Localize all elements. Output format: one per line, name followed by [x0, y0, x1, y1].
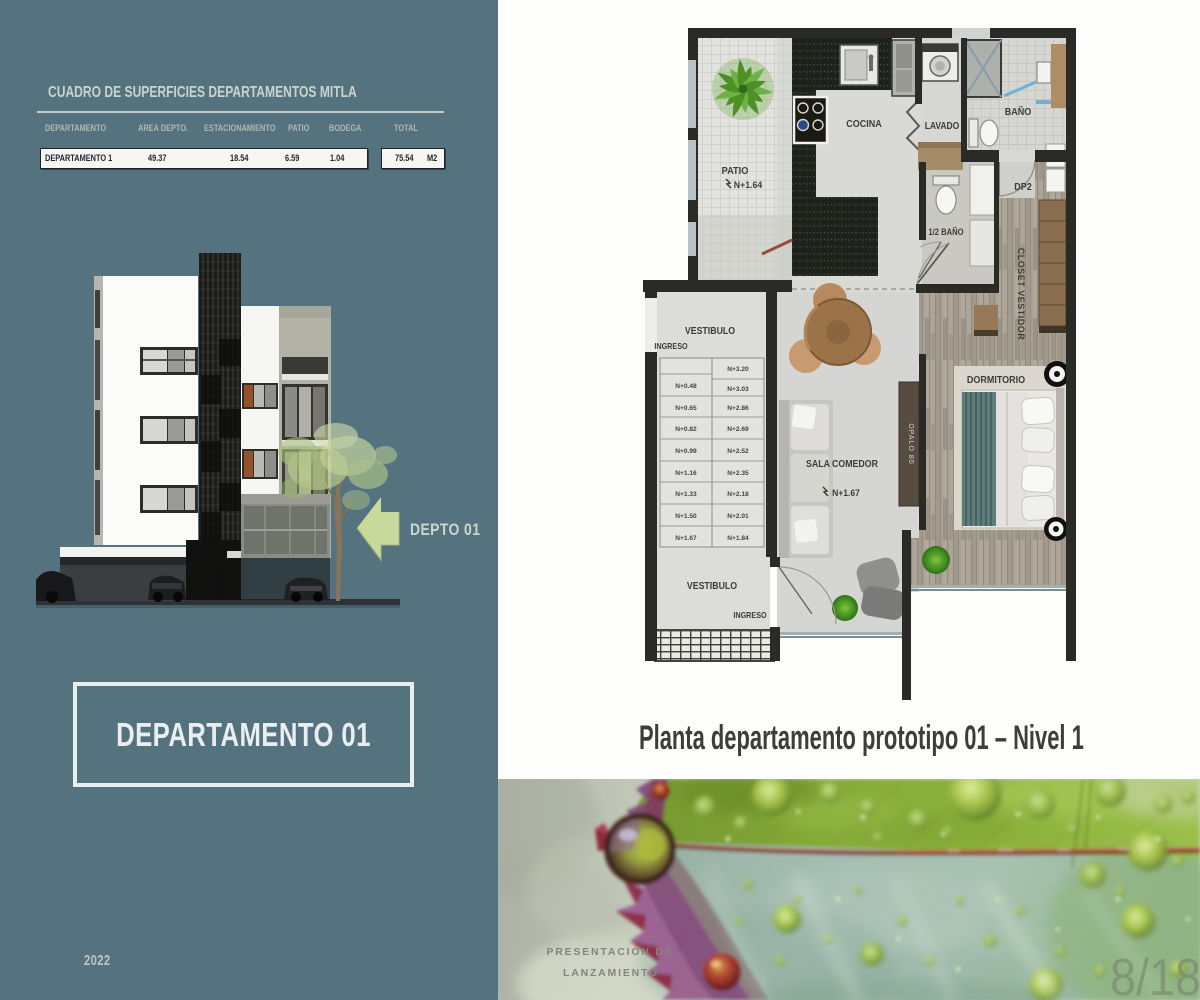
svg-text:VESTIBULO: VESTIBULO [685, 324, 735, 336]
svg-text:N+1.50: N+1.50 [675, 513, 697, 520]
svg-text:INGRESO: INGRESO [733, 610, 766, 620]
svg-text:COCINA: COCINA [846, 119, 882, 131]
svg-text:PRESENTACIÓN DE: PRESENTACIÓN DE [546, 945, 673, 958]
svg-text:N+0.82: N+0.82 [675, 426, 697, 433]
svg-text:OPALO 80: OPALO 80 [907, 423, 914, 464]
svg-text:N+2.69: N+2.69 [727, 426, 749, 433]
svg-text:N+3.03: N+3.03 [727, 386, 749, 393]
svg-text:DEPTO 01: DEPTO 01 [410, 521, 480, 540]
svg-text:1/2 BAÑO: 1/2 BAÑO [928, 226, 964, 237]
svg-text:N+1.67: N+1.67 [675, 535, 697, 542]
svg-text:N+2.01: N+2.01 [727, 513, 749, 520]
svg-text:N+2.35: N+2.35 [727, 470, 749, 477]
svg-text:N+0.65: N+0.65 [675, 405, 697, 412]
svg-text:N+2.86: N+2.86 [727, 405, 749, 412]
svg-text:N+2.18: N+2.18 [727, 491, 749, 498]
svg-text:CLOSET VESTIDOR: CLOSET VESTIDOR [1016, 248, 1026, 341]
svg-text:N+0.48: N+0.48 [675, 383, 697, 390]
svg-text:VESTIBULO: VESTIBULO [687, 579, 737, 591]
svg-text:INGRESO: INGRESO [654, 341, 687, 351]
svg-text:N+2.52: N+2.52 [727, 448, 749, 455]
svg-text:8/18: 8/18 [1110, 949, 1200, 1000]
svg-text:N+0.99: N+0.99 [675, 448, 697, 455]
svg-text:DP2: DP2 [1014, 182, 1031, 194]
svg-text:N+1.64: N+1.64 [734, 180, 763, 190]
svg-text:DORMITORIO: DORMITORIO [967, 375, 1025, 387]
svg-text:PATIO: PATIO [722, 166, 749, 177]
svg-text:N+1.16: N+1.16 [675, 470, 697, 477]
svg-text:BAÑO: BAÑO [1005, 107, 1031, 119]
svg-text:N+1.33: N+1.33 [675, 491, 697, 498]
svg-text:N+1.67: N+1.67 [832, 488, 860, 499]
svg-text:N+3.20: N+3.20 [727, 366, 749, 373]
svg-text:LAVADO: LAVADO [925, 120, 960, 131]
svg-text:N+1.84: N+1.84 [727, 535, 749, 542]
svg-text:SALA COMEDOR: SALA COMEDOR [806, 457, 878, 469]
svg-text:LANZAMIENTO: LANZAMIENTO [563, 967, 659, 979]
